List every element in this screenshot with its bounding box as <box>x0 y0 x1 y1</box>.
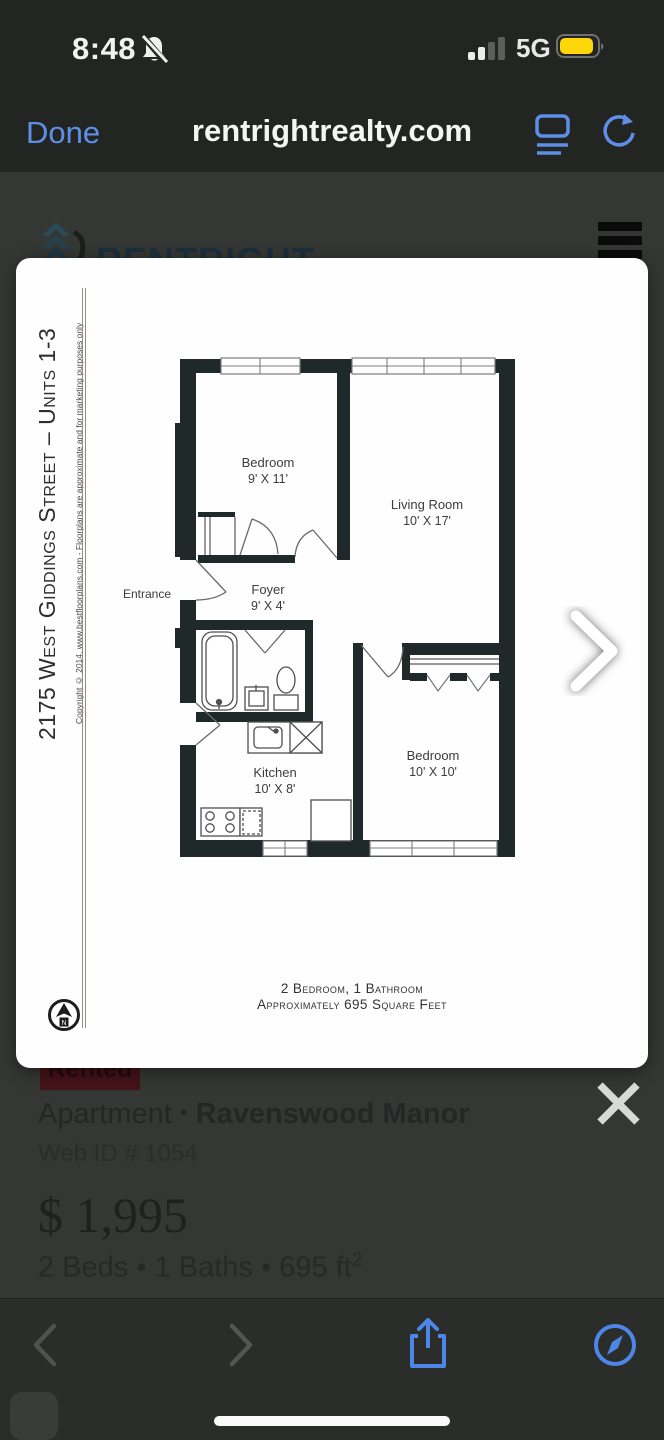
closets <box>205 517 499 691</box>
room-dims: 9' X 11' <box>248 472 288 486</box>
floorplan-lightbox: 2175 West Giddings Street – Units 1-3 Co… <box>16 258 648 1068</box>
title-divider-rule <box>82 288 86 1028</box>
room-label: Bedroom <box>407 748 460 763</box>
home-indicator[interactable] <box>214 1416 450 1426</box>
phone-screen: RENTRIGHT 8:48 5G Done rentrightrealty.c… <box>0 0 664 1440</box>
room-dims: 10' X 17' <box>403 514 451 528</box>
room-label: Foyer <box>251 582 285 597</box>
status-time: 8:48 <box>72 31 136 67</box>
bathroom-fixtures <box>202 632 298 710</box>
listing-neighborhood: Ravenswood Manor <box>196 1098 470 1130</box>
floorplan-caption: 2 Bedroom, 1 Bathroom Approximately 695 … <box>56 981 648 1013</box>
room-dims: 10' X 8' <box>255 782 296 796</box>
room-dims: 10' X 10' <box>409 765 457 779</box>
room-label: Kitchen <box>253 765 296 780</box>
sqft-superscript: 2 <box>352 1250 363 1271</box>
entrance-label: Entrance <box>123 587 171 601</box>
signal-icon <box>468 36 512 62</box>
done-button[interactable]: Done <box>26 115 100 151</box>
walls <box>175 359 515 857</box>
forward-icon[interactable] <box>226 1322 256 1368</box>
corner-artifact <box>10 1392 58 1440</box>
network-type-label: 5G <box>516 33 551 64</box>
close-icon[interactable] <box>594 1078 642 1126</box>
compass-north-icon: N <box>46 997 82 1033</box>
bell-slash-icon <box>138 33 172 65</box>
listing-web-id: Web ID # 1054 <box>38 1140 198 1168</box>
listing-summary: 2 Beds • 1 Baths • 695 ft2 <box>38 1250 362 1285</box>
listing-title: Apartment • Ravenswood Manor <box>38 1098 470 1131</box>
room-label: Living Room <box>391 497 463 512</box>
brand-logo-icon <box>30 214 94 264</box>
share-icon[interactable] <box>406 1316 450 1372</box>
dot-separator: • <box>180 1100 188 1125</box>
room-label: Bedroom <box>242 455 295 470</box>
reload-icon[interactable] <box>600 110 640 156</box>
caption-line-2: Approximately 695 Square Feet <box>56 997 648 1013</box>
reader-view-icon[interactable] <box>534 112 574 158</box>
floorplan-drawing: Bedroom 9' X 11' Living Room 10' X 17' F… <box>118 355 538 870</box>
battery-icon <box>556 34 608 60</box>
safari-compass-icon[interactable] <box>592 1322 638 1368</box>
listing-type: Apartment <box>38 1098 172 1130</box>
room-dims: 9' X 4' <box>251 599 285 613</box>
listing-price: $ 1,995 <box>38 1186 188 1244</box>
back-icon[interactable] <box>30 1322 60 1368</box>
beds-baths-sqft: 2 Beds • 1 Baths • 695 ft <box>38 1252 352 1284</box>
floorplan-title-vertical: 2175 West Giddings Street – Units 1-3 <box>34 292 61 740</box>
compass-n-letter: N <box>61 1020 66 1027</box>
caption-line-1: 2 Bedroom, 1 Bathroom <box>56 981 648 997</box>
next-image-button[interactable] <box>562 606 626 696</box>
